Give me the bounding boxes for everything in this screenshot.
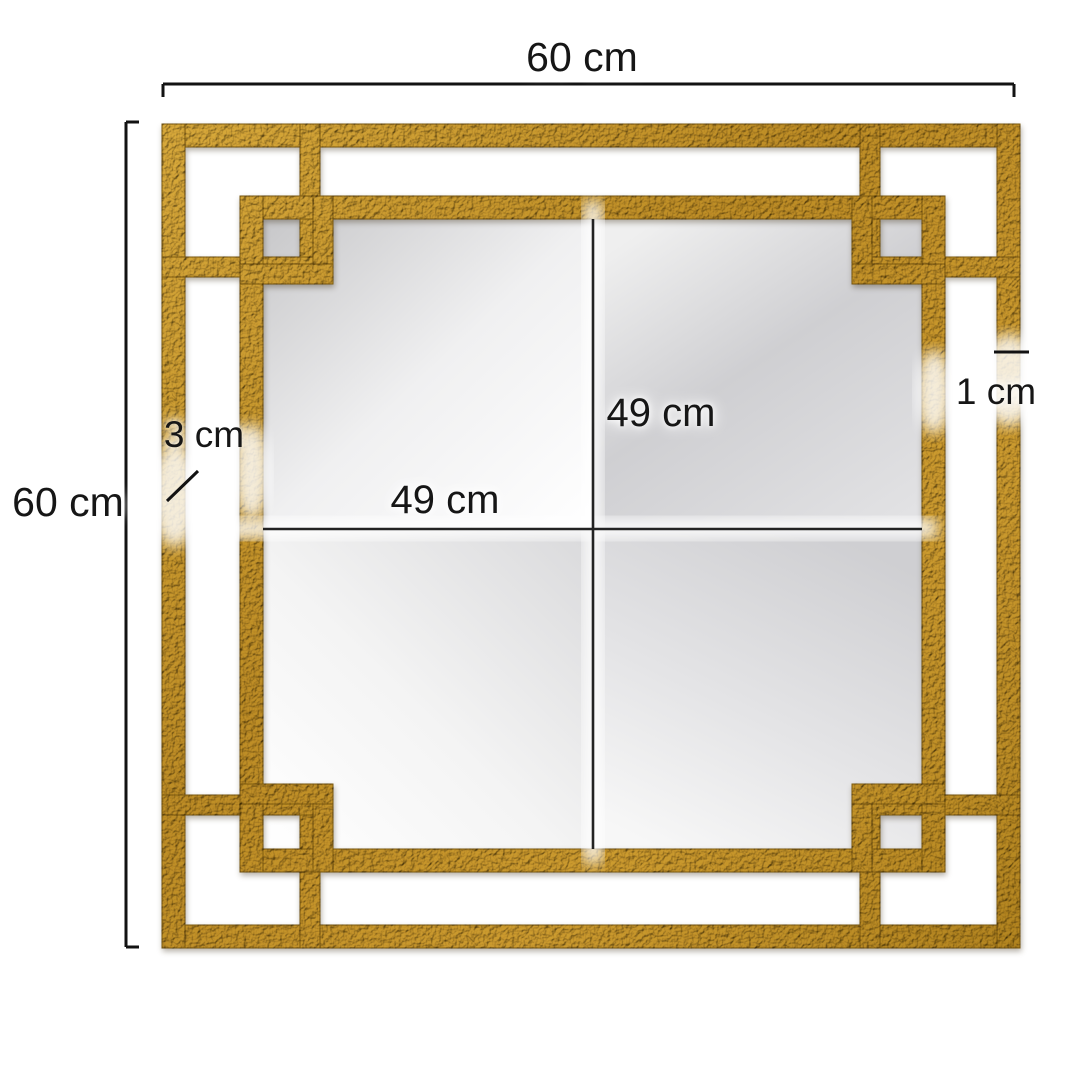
outer-frame-top-bar bbox=[162, 124, 1020, 147]
label-bar-thickness: 1 cm bbox=[956, 371, 1036, 412]
diagram-canvas: 60 cm 60 cm 49 cm 49 cm 3 cm 1 cm bbox=[0, 0, 1080, 1079]
inner-corner-square-top-left-bar bbox=[240, 264, 333, 284]
outer-frame-right-bar bbox=[997, 124, 1020, 948]
inner-corner-square-top-right-bar bbox=[852, 264, 945, 284]
inner-corner-square-bottom-left-bar bbox=[240, 784, 333, 804]
label-overall-width: 60 cm bbox=[526, 34, 638, 80]
inner-corner-square-bottom-right-bar bbox=[852, 784, 945, 804]
outer-frame-bottom-bar bbox=[162, 925, 1020, 948]
label-glass-height: 49 cm bbox=[607, 391, 716, 435]
label-glass-width: 49 cm bbox=[391, 478, 500, 522]
mirror-dimension-diagram: 60 cm 60 cm 49 cm 49 cm 3 cm 1 cm bbox=[0, 0, 1080, 1079]
label-overall-height: 60 cm bbox=[12, 479, 124, 525]
label-frame-offset: 3 cm bbox=[164, 414, 244, 455]
